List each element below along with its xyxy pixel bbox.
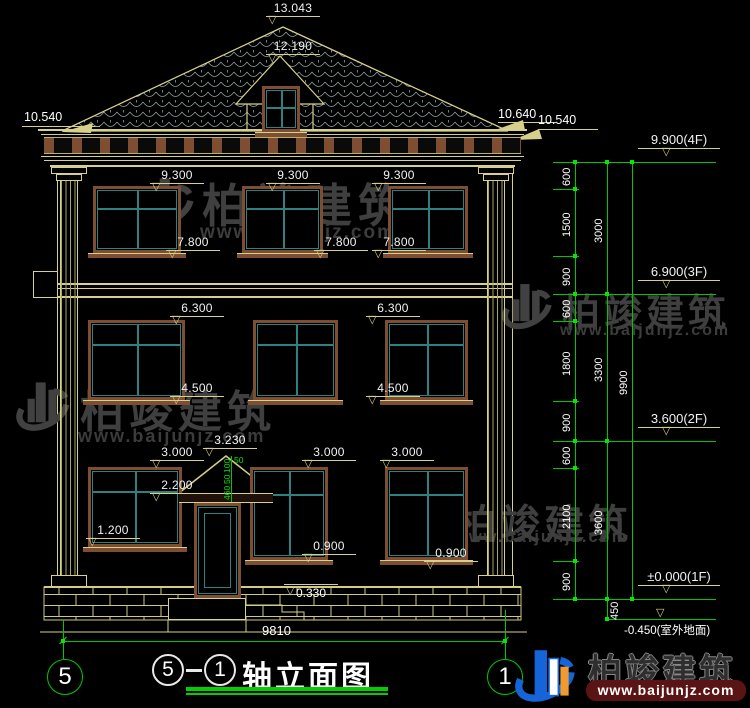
dim-label: 3300 — [593, 358, 605, 382]
cornice-dentils — [44, 137, 521, 154]
triangle-icon: ▽ — [304, 553, 312, 563]
grip — [61, 639, 65, 643]
window-3f-center — [242, 186, 323, 253]
dim-label: 460 — [222, 486, 232, 500]
pilaster-capital — [51, 167, 87, 174]
dim-label: 3000 — [593, 219, 605, 243]
pilaster-capital — [478, 167, 514, 174]
window-glass — [389, 471, 464, 556]
dim-label: 50 — [222, 475, 232, 484]
triangle-icon: ▽ — [172, 315, 180, 325]
triangle-icon: ▽ — [368, 395, 376, 405]
elevation-mark: 10.640 — [498, 107, 536, 121]
brand-url: www.baijunjz.com — [598, 682, 735, 698]
pilaster-capital — [483, 174, 509, 181]
window-sill — [248, 400, 343, 405]
elevation-mark: 1.200▽ — [86, 524, 140, 539]
elevation-mark-dormer: 12.190▽ — [266, 40, 320, 55]
dim-label: 1500 — [561, 213, 573, 237]
triangle-icon: ▽ — [662, 279, 670, 289]
elevation-mark: 3.230▽ — [203, 434, 257, 449]
triangle-icon: ▽ — [168, 249, 176, 259]
window-sill — [380, 400, 473, 405]
mullion — [281, 91, 283, 127]
mullion — [428, 191, 430, 248]
mullion — [137, 325, 139, 395]
grip — [573, 319, 577, 323]
mullion — [283, 191, 285, 248]
axis-line — [505, 610, 506, 659]
grip — [503, 639, 507, 643]
grip — [573, 439, 577, 443]
triangle-icon: ▽ — [656, 606, 664, 619]
grip — [605, 160, 609, 164]
grip — [605, 597, 609, 601]
grip — [605, 439, 609, 443]
triangle-icon: ▽ — [152, 459, 160, 469]
dim-label: 50 — [234, 455, 243, 465]
grip — [573, 160, 577, 164]
triangle-icon: ▽ — [268, 53, 276, 63]
axis-bubble-left: 5 — [47, 659, 83, 695]
triangle-icon: ▽ — [152, 182, 160, 192]
grip — [630, 160, 634, 164]
leader-arrow-right-eave-upper — [498, 120, 525, 130]
triangle-icon: ▽ — [662, 147, 670, 157]
pilaster-shaft — [487, 181, 505, 575]
total-dim-line — [63, 641, 505, 642]
elevation-mark: 6.300▽ — [170, 302, 224, 317]
dim-label: 9900 — [618, 371, 630, 395]
triangle-icon: ▽ — [374, 249, 382, 259]
side-ledge — [33, 271, 58, 298]
total-width-dim: 9810 — [262, 623, 291, 638]
dim-label: 600 — [561, 447, 573, 465]
dim-label: 3600 — [593, 511, 605, 535]
mullion — [427, 325, 429, 395]
grip — [573, 466, 577, 470]
window-glass — [246, 190, 319, 249]
triangle-icon: ▽ — [304, 459, 312, 469]
dim-label: 900 — [561, 573, 573, 591]
brand-logo-icon — [514, 646, 580, 706]
window-sill — [237, 253, 328, 258]
level-line — [575, 441, 716, 442]
triangle-icon: ▽ — [286, 584, 294, 597]
dim-label: 900 — [561, 268, 573, 286]
door-panel — [204, 513, 231, 588]
triangle-icon: ▽ — [368, 315, 376, 325]
elevation-mark: 10.540 — [24, 110, 62, 124]
grip — [573, 597, 577, 601]
elevation-mark: 3.000▽ — [150, 446, 204, 461]
pilaster-shaft — [60, 181, 78, 575]
plinth-bricks — [44, 587, 521, 620]
grip — [573, 187, 577, 191]
triangle-icon: ▽ — [382, 459, 390, 469]
window-sill — [83, 547, 187, 552]
level-mark-ground: -0.450(室外地面) — [624, 622, 710, 638]
dim-label: 1800 — [561, 352, 573, 376]
dim-chain-line — [632, 162, 633, 599]
level-line — [575, 162, 716, 163]
brand-url-strip: www.baijunjz.com — [586, 680, 746, 701]
grip — [605, 292, 609, 296]
elevation-mark: 9.300▽ — [150, 169, 204, 184]
elevation-mark: 7.800▽ — [314, 236, 368, 251]
level-mark-1f: ±0.000(1F)▽ — [638, 570, 720, 586]
dim-label: 600 — [561, 300, 573, 318]
elevation-mark: 0.330 — [296, 586, 326, 600]
triangle-icon: ▽ — [426, 560, 434, 570]
dormer-sill — [255, 132, 307, 137]
watermark-logo-icon — [500, 276, 554, 336]
window-glass — [92, 324, 181, 396]
dim-label: 2100 — [561, 505, 573, 529]
level-line — [575, 294, 716, 295]
triangle-icon: ▽ — [662, 426, 670, 436]
dim-label: 900 — [561, 414, 573, 432]
grip — [573, 254, 577, 258]
elevation-mark: 10.540 — [538, 113, 576, 127]
elevation-mark: 7.800▽ — [166, 236, 220, 251]
triangle-icon: ▽ — [205, 447, 213, 457]
mullion — [427, 472, 429, 555]
level-mark-3f: 6.900(3F)▽ — [638, 265, 720, 281]
grip — [573, 292, 577, 296]
pilaster-base — [51, 575, 87, 587]
mullion — [137, 191, 139, 248]
triangle-icon: ▽ — [172, 395, 180, 405]
title-axis-from: 5 — [152, 654, 184, 686]
grip — [573, 559, 577, 563]
mullion — [296, 325, 298, 395]
grip — [573, 399, 577, 403]
pilaster-capital — [56, 174, 82, 181]
door-stoop — [168, 598, 246, 620]
level-line — [575, 599, 716, 600]
elevation-mark-apex: 13.043▽ — [266, 2, 320, 17]
pilaster-base — [478, 575, 514, 587]
window-glass — [97, 190, 177, 249]
level-line — [607, 619, 716, 620]
title-axis-to: 1 — [204, 654, 236, 686]
triangle-icon: ▽ — [152, 492, 160, 502]
window-glass — [266, 90, 296, 128]
elevation-mark: 0.900▽ — [302, 540, 356, 555]
elevation-mark: 9.300▽ — [372, 169, 426, 184]
dim-label: 450 — [609, 602, 621, 620]
level-mark-4f: 9.900(4F)▽ — [638, 133, 720, 149]
entry-door — [194, 503, 241, 598]
triangle-icon: ▽ — [268, 182, 276, 192]
triangle-icon: ▽ — [316, 249, 324, 259]
window-sill — [383, 253, 473, 258]
grip — [630, 597, 634, 601]
dim-chain-line — [607, 162, 608, 619]
window-2f-center — [253, 320, 338, 400]
elevation-mark: 4.500▽ — [170, 382, 224, 397]
elevation-mark: 7.800▽ — [372, 236, 426, 251]
triangle-icon: ▽ — [88, 537, 96, 547]
elevation-mark: 6.300▽ — [366, 302, 420, 317]
window-glass — [257, 324, 334, 396]
triangle-icon: ▽ — [374, 182, 382, 192]
triangle-icon: ▽ — [268, 15, 276, 25]
elevation-mark: 3.000▽ — [302, 446, 356, 461]
window-sill — [245, 560, 333, 565]
title-dash — [186, 669, 202, 672]
dim-chain-line — [575, 162, 576, 599]
elevation-mark: 0.900▽ — [424, 547, 478, 562]
elevation-mark: 9.300▽ — [266, 169, 320, 184]
dormer-window — [262, 86, 300, 132]
elevation-mark: 4.500▽ — [366, 382, 420, 397]
elevation-mark: 3.000▽ — [380, 446, 434, 461]
watermark-url: www.baijunjz.com — [560, 322, 730, 340]
cad-canvas: 100 50 460 50 13.043▽ 12.190▽ 9.300▽ 9.3… — [0, 0, 750, 708]
mullion — [289, 472, 291, 555]
triangle-icon: ▽ — [662, 584, 670, 594]
dim-label: 100 — [222, 459, 232, 473]
title-underline — [186, 687, 388, 691]
level-mark-2f: 3.600(2F)▽ — [638, 412, 720, 428]
title-underline-thin — [186, 693, 388, 695]
dim-label: 600 — [561, 168, 573, 186]
elevation-mark: 2.200▽ — [150, 479, 204, 494]
